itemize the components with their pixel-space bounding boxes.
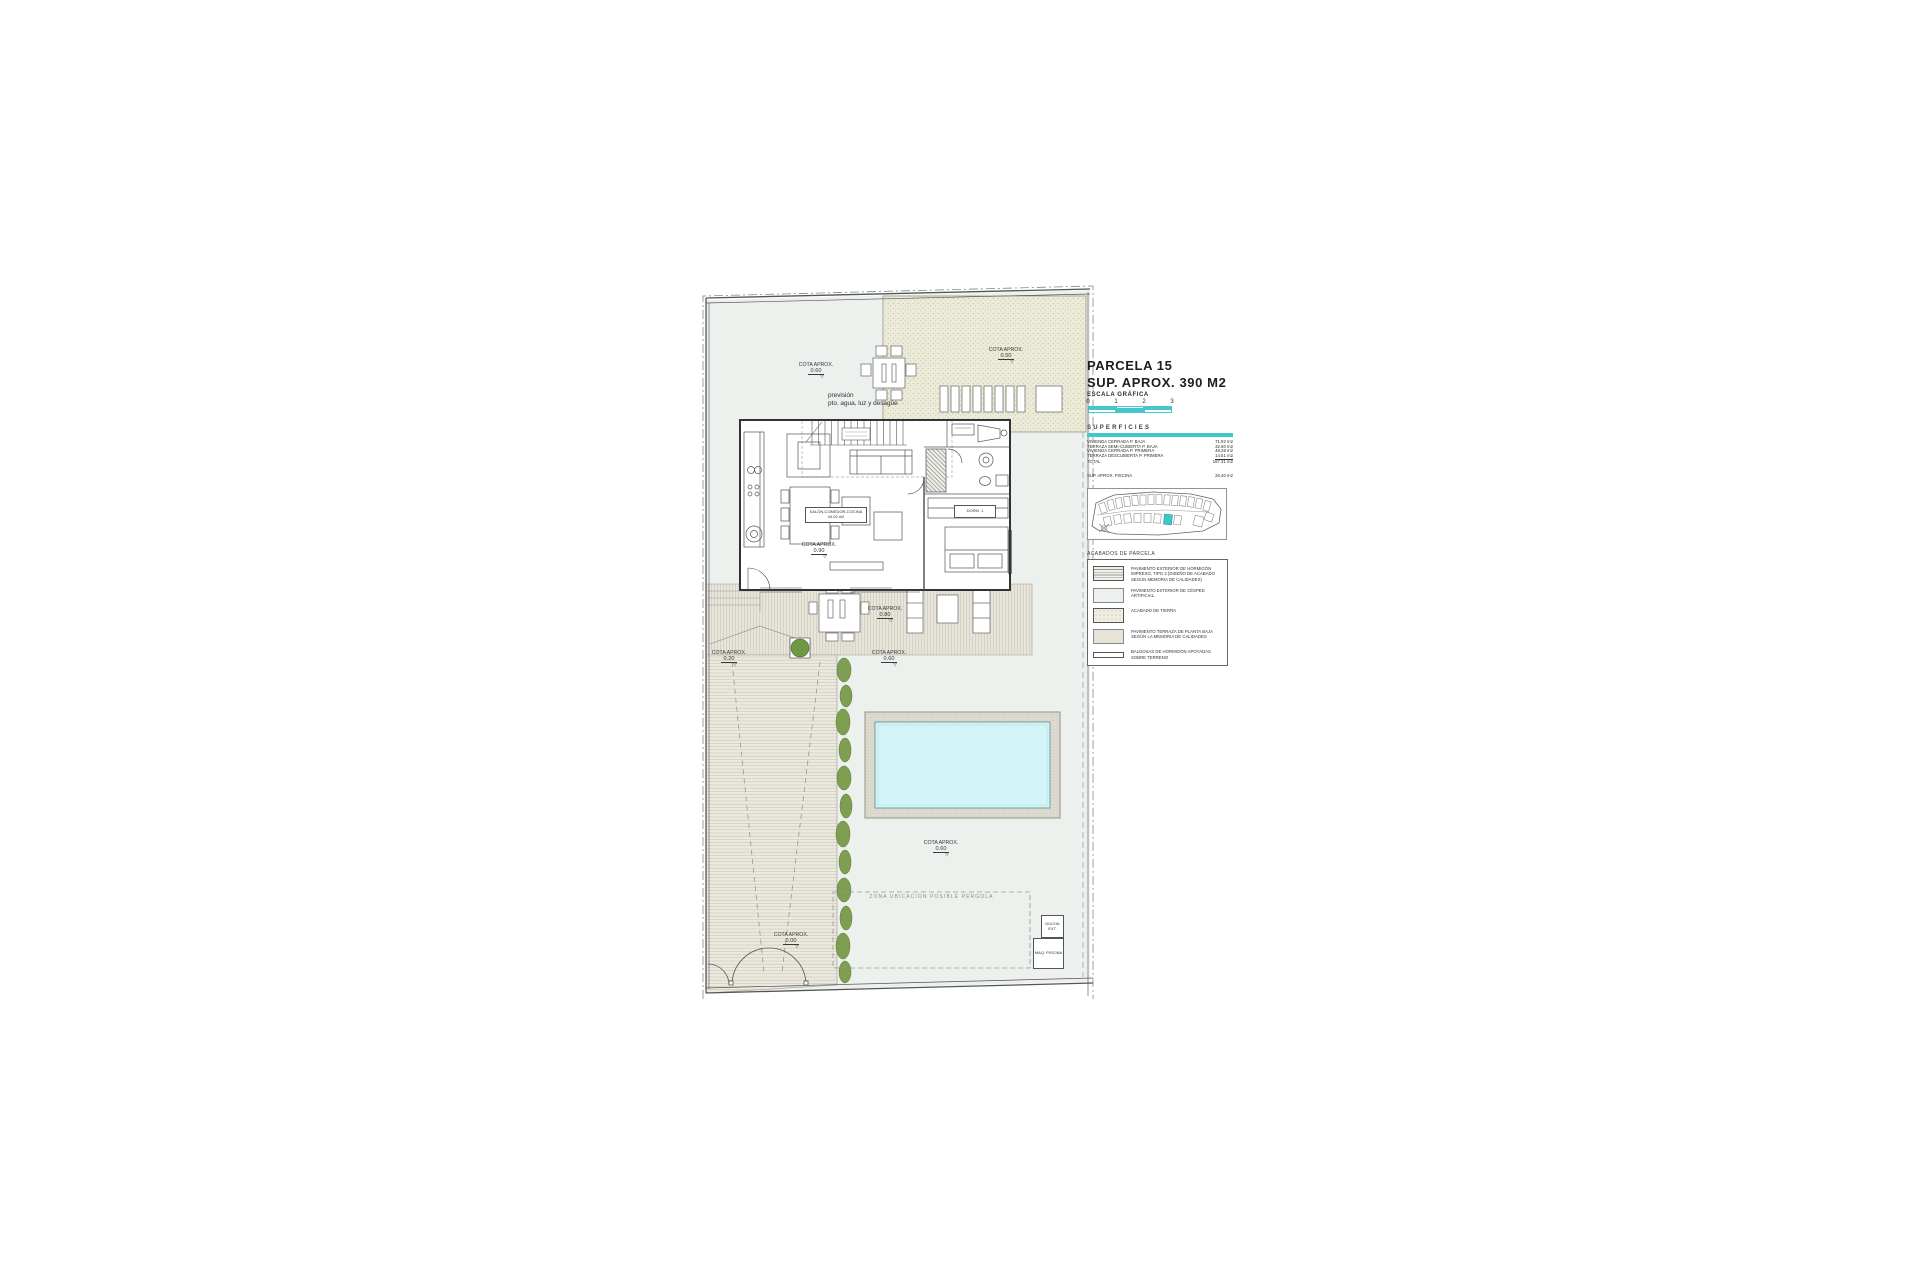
superficies-title: SUPERFICIES bbox=[1087, 425, 1151, 431]
level-marker-icon: ▽ bbox=[780, 945, 814, 949]
superficies-underline bbox=[1087, 433, 1233, 437]
planter-bush bbox=[790, 638, 810, 658]
swatch-terrace-paving bbox=[1093, 629, 1124, 644]
scale-label: ESCALA GRÁFICA bbox=[1087, 392, 1149, 398]
cota-driveway: COTA APROX. 0.20 ▽ bbox=[706, 650, 752, 667]
cota-house: COTA APROX. 0.90 ▽ bbox=[796, 542, 842, 559]
swatch-artificial-grass bbox=[1093, 588, 1124, 603]
level-marker-icon: ▽ bbox=[930, 853, 964, 857]
parcel-area: SUP. APROX. 390 M2 bbox=[1087, 375, 1226, 390]
parcel-title: PARCELA 15 bbox=[1087, 358, 1172, 373]
legend-title: ACABADOS DE PARCELA bbox=[1087, 551, 1155, 557]
level-marker-icon: ▽ bbox=[878, 663, 912, 667]
bedroom-label: DORM. 1 bbox=[954, 505, 996, 518]
level-marker-icon: ▽ bbox=[995, 360, 1029, 364]
outdoor-shower-box: DUCHA EXT. bbox=[1041, 915, 1064, 938]
drawing-sheet: COTA APROX. 0.60 ▽ COTA APROX. 0.50 ▽ CO… bbox=[0, 0, 1920, 1280]
cota-mid-garden: COTA APROX. 0.60 ▽ bbox=[866, 650, 912, 667]
cota-lower-garden: COTA APROX. 0.60 ▽ bbox=[918, 840, 964, 857]
level-marker-icon: ▽ bbox=[874, 619, 908, 623]
keymap-drawing bbox=[1087, 488, 1227, 540]
swatch-concrete-tiles bbox=[1093, 652, 1124, 658]
legend-item: PAVIMENTO EXTERIOR DE CÉSPED ARTIFICIAL bbox=[1093, 588, 1222, 603]
legend-item: BALDOSAS DE HORMIGÓN APOYADAS SOBRE TERR… bbox=[1093, 649, 1222, 660]
graphic-scale: 0 1 2 3 bbox=[1088, 399, 1172, 413]
legend-item: PAVIMENTO TERRAZA DE PLANTA BAJA SEGÚN L… bbox=[1093, 629, 1222, 644]
slat-structures bbox=[940, 386, 1062, 412]
finishes-legend: PAVIMENTO EXTERIOR DE HORMIGÓN IMPRESO, … bbox=[1087, 559, 1228, 666]
pool bbox=[865, 712, 1060, 818]
cota-top-lawn: COTA APROX. 0.60 ▽ bbox=[793, 362, 839, 379]
pool-equipment-box: MAQ. PISCINA bbox=[1033, 938, 1064, 969]
swatch-earth bbox=[1093, 608, 1124, 623]
utilities-note: previsión pto. agua, luz y desagüe bbox=[828, 392, 898, 408]
living-room-label: SALÓN-COMEDOR-COCINA 44.02 m2 bbox=[805, 507, 867, 523]
level-marker-icon: ▽ bbox=[805, 375, 839, 379]
highlighted-parcel bbox=[1163, 514, 1172, 525]
superficies-table: VIVIENDA CERRADA P. BAJA71.92 m2 TERRAZA… bbox=[1087, 440, 1233, 478]
site-plan-drawing bbox=[702, 282, 1094, 1000]
legend-item: ACABADO DE TIERRA bbox=[1093, 608, 1222, 623]
swatch-printed-concrete bbox=[1093, 566, 1124, 581]
pergola-zone-label: ZONA UBICACIÓN POSIBLE PÉRGOLA bbox=[833, 894, 1030, 900]
table-row-pool: SUP. APROX. PISCINA26.40 m2 bbox=[1087, 474, 1233, 479]
table-row-total: TOTAL167.31 m2 bbox=[1087, 460, 1233, 465]
cota-terrace: COTA APROX. 0.80 ▽ bbox=[862, 606, 908, 623]
legend-item: PAVIMENTO EXTERIOR DE HORMIGÓN IMPRESO, … bbox=[1093, 566, 1222, 582]
level-marker-icon: ▽ bbox=[718, 663, 752, 667]
cota-tierra: COTA APROX. 0.50 ▽ bbox=[983, 347, 1029, 364]
level-marker-icon: ▽ bbox=[808, 555, 842, 559]
cota-entrance: COTA APROX. 0.00 ▽ bbox=[768, 932, 814, 949]
